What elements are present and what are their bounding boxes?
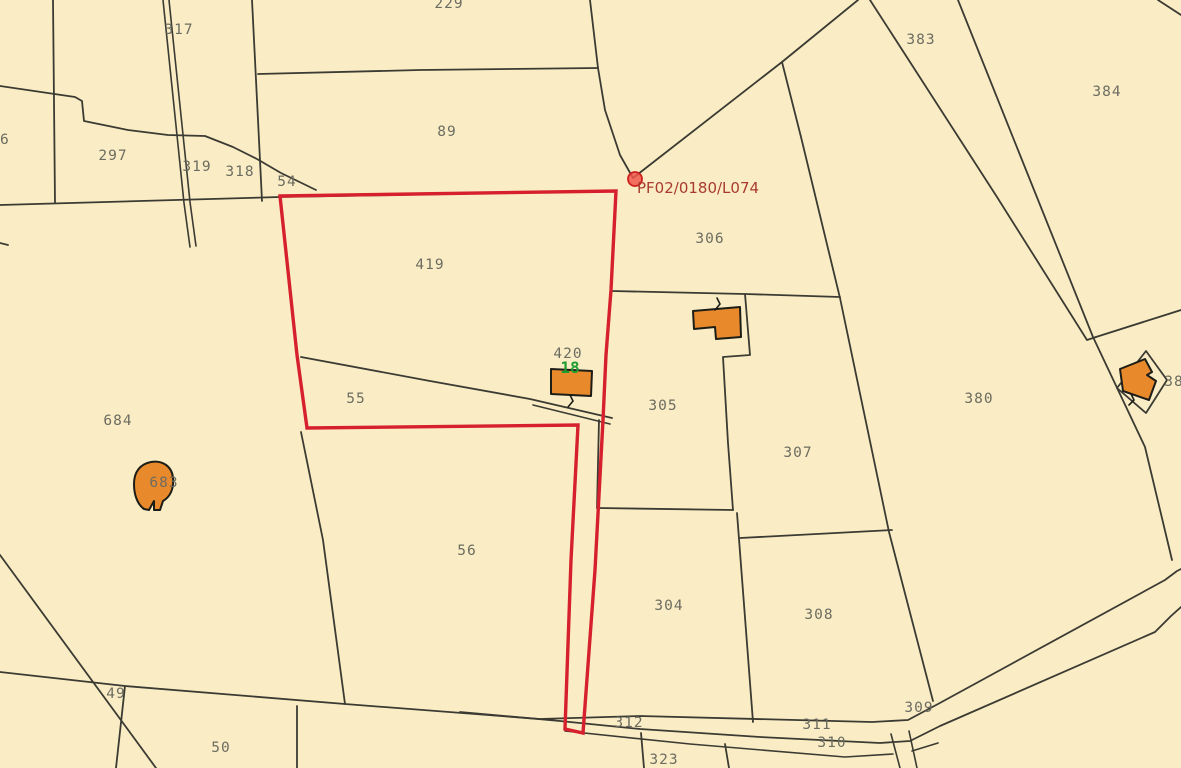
building-small-right [1120,359,1156,400]
building-l-shape [693,307,741,339]
selection-reference-label: PF02/0180/L074 [637,179,759,197]
boundary-line [958,0,1172,560]
boundary-line [633,0,858,178]
boundary-line [0,243,8,245]
parcel-label-96: 96 [0,132,10,148]
parcel-label-323: 323 [649,752,678,768]
parcel-label-307: 307 [783,445,812,461]
parcel-label-318: 318 [225,164,254,180]
parcel-label-89: 89 [437,124,456,140]
buildings [134,298,1156,510]
parcel-label-38: 38 [1164,374,1181,390]
house-number-label: 18 [560,358,579,377]
parcel-label-419: 419 [415,257,444,273]
parcel-label-380: 380 [964,391,993,407]
boundary-line [612,291,840,297]
parcel-label-229: 229 [434,0,463,12]
parcel-label-384: 384 [1092,84,1121,100]
parcel-label-684: 684 [103,413,132,429]
parcel-label-56: 56 [457,543,476,559]
parcel-label-54: 54 [277,174,296,190]
cadastral-map-canvas[interactable]: 317 229 96 297 319 318 54 89 419 306 420… [0,0,1181,768]
parcel-label-297: 297 [98,148,127,164]
boundary-line [1158,0,1181,15]
selected-parcel-outline[interactable] [280,191,616,733]
parcel-label-49: 49 [106,686,125,702]
parcel-label-312: 312 [614,715,643,731]
boundary-line [740,530,892,538]
parcel-label-319: 319 [182,159,211,175]
parcel-label-311: 311 [802,717,831,733]
boundary-line [870,0,1096,340]
boundary-line [782,62,933,701]
boundary-line [258,68,598,74]
parcel-label-304: 304 [654,598,683,614]
building-tick-icon [568,395,573,407]
parcel-label-55: 55 [346,391,365,407]
boundary-line [0,86,316,190]
parcel-label-305: 305 [648,398,677,414]
boundary-line [737,513,753,722]
parcel-label-383: 383 [906,32,935,48]
boundary-line [0,555,156,768]
parcel-label-50: 50 [211,740,230,756]
parcel-label-309: 309 [904,700,933,716]
parcel-label-317: 317 [164,22,193,38]
parcel-label-683: 683 [149,475,178,491]
boundary-line [597,508,733,510]
road-edge [891,734,900,768]
road-edge [912,743,938,751]
map-svg: 317 229 96 297 319 318 54 89 419 306 420… [0,0,1181,768]
boundary-line [53,0,55,203]
parcel-label-306: 306 [695,231,724,247]
parcel-label-310: 310 [817,735,846,751]
boundary-line [301,432,345,704]
boundary-line [1096,310,1181,337]
parcel-label-308: 308 [804,607,833,623]
boundary-line [590,0,633,178]
